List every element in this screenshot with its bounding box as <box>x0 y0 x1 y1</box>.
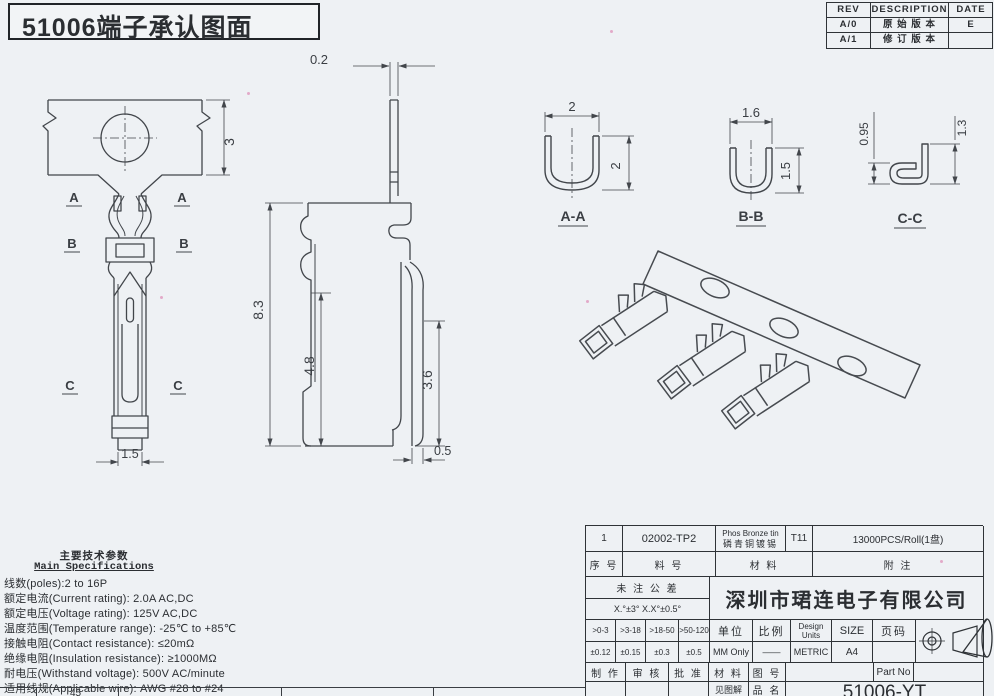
approve-value <box>669 682 709 696</box>
rev-row-desc: 原 始 版 本 <box>871 18 949 33</box>
side-view-drawing: 0.2 8.3 4.8 3.6 0.5 <box>253 48 458 473</box>
bottom-table-fragment <box>0 687 586 696</box>
tol-range: >3-18 <box>616 620 646 642</box>
dim-aa-width: 2 <box>568 99 575 114</box>
terminal-3d-2 <box>645 314 755 401</box>
untoleranced-label: 未 注 公 差 <box>586 577 710 599</box>
front-view-outline <box>43 100 210 450</box>
spec-line: 耐电压(Withstand voltage): 500V AC/minute <box>4 665 225 679</box>
terminal-3d-3 <box>709 344 819 431</box>
design-units-label: Design Units <box>791 620 832 642</box>
spec-line: 绝缘电阻(Insulation resistance): ≥1000MΩ <box>4 650 217 664</box>
dim-cc-left: 0.95 <box>857 122 871 146</box>
title-block: 1 02002-TP2 Phos Bronze tin 磷青铜镀锡 T11 13… <box>585 525 983 696</box>
part-material: Phos Bronze tin 磷青铜镀锡 <box>716 526 786 552</box>
part-index: 1 <box>586 526 623 552</box>
drawing-no-label: 图 号 <box>749 663 786 682</box>
dim-cc-right: 1.3 <box>955 119 969 136</box>
header-material: 材 料 <box>716 552 813 577</box>
spec-line: 接触电阻(Contact resistance): ≤20mΩ <box>4 635 194 649</box>
table-divider <box>433 688 434 696</box>
dim-foot-width: 0.5 <box>434 444 451 458</box>
check-value <box>626 682 669 696</box>
header-part-number: 料 号 <box>623 552 716 577</box>
rev-row-date <box>949 33 993 49</box>
dim-spring-height: 3.6 <box>419 370 435 390</box>
table-fragment-value: 45 <box>70 688 81 696</box>
material-en: Phos Bronze tin <box>722 528 778 539</box>
revision-table: REV DESCRIPTION DATE A/0 原 始 版 本 E A/1 修… <box>826 2 993 49</box>
dim-aa-height: 2 <box>608 162 623 169</box>
page-value <box>873 642 916 663</box>
tol-value: ±0.3 <box>646 642 679 663</box>
spec-line: 额定电压(Voltage rating): 125V AC,DC <box>4 605 197 619</box>
scale-label: 比例 <box>753 620 791 642</box>
size-label: SIZE <box>832 620 873 642</box>
section-cc-label: C-C <box>898 210 923 226</box>
header-note: 附 注 <box>813 552 984 577</box>
part-no-label: Part No <box>874 663 914 682</box>
rev-header-rev: REV <box>827 3 871 18</box>
section-aa-label: A-A <box>561 208 586 224</box>
table-divider <box>281 688 282 696</box>
check-label: 审 核 <box>626 663 669 682</box>
scan-speck <box>160 296 163 299</box>
unit-value: MM Only <box>710 642 753 663</box>
isometric-strip-drawing <box>552 248 994 488</box>
design-units-value: METRIC <box>791 642 832 663</box>
scan-speck <box>940 560 943 563</box>
scan-speck <box>610 30 613 33</box>
part-number: 02002-TP2 <box>623 526 716 552</box>
material-grade: T11 <box>786 526 813 552</box>
product-label: 品 名 <box>749 682 786 696</box>
company-name: 深圳市珺连电子有限公司 <box>710 577 984 620</box>
tol-value: ±0.5 <box>679 642 710 663</box>
section-label-c-right: C <box>173 378 183 393</box>
side-view-outline <box>301 100 424 446</box>
part-no-value: 51006-YT <box>786 682 984 696</box>
section-label-a-left: A <box>69 190 79 205</box>
scan-speck <box>586 300 589 303</box>
part-no-spacer <box>914 663 984 682</box>
see-note-label: 见图解 <box>709 682 749 696</box>
spec-line: 额定电流(Current rating): 2.0A AC,DC <box>4 590 194 604</box>
rev-header-desc: DESCRIPTION <box>871 3 949 18</box>
dim-tip-width: 1.5 <box>121 447 138 461</box>
make-label: 制 作 <box>586 663 626 682</box>
rev-row-rev: A/1 <box>827 33 871 49</box>
dim-strip-height: 3 <box>221 138 237 146</box>
make-value <box>586 682 626 696</box>
tol-value: ±0.15 <box>616 642 646 663</box>
drawing-sheet: 51006端子承认图面 REV DESCRIPTION DATE A/0 原 始… <box>0 0 994 696</box>
scan-speck <box>247 92 250 95</box>
material-cn: 磷青铜镀锡 <box>723 539 778 550</box>
page-title: 51006端子承认图面 <box>8 3 320 40</box>
header-index: 序 号 <box>586 552 623 577</box>
spec-line: 温度范围(Temperature range): -25℃ to +85℃ <box>4 620 236 634</box>
approve-label: 批 准 <box>669 663 709 682</box>
specs-title-en: Main Specifications <box>26 561 162 573</box>
projection-cone-icon <box>960 616 994 662</box>
rev-row-date: E <box>949 18 993 33</box>
table-divider <box>118 688 119 696</box>
section-bb-label: B-B <box>739 208 764 224</box>
tol-range: >50-120 <box>679 620 710 642</box>
tol-range: >18-50 <box>646 620 679 642</box>
spec-line: 线数(poles):2 to 16P <box>4 575 107 589</box>
dim-bb-width: 1.6 <box>742 105 760 120</box>
section-label-c-left: C <box>65 378 75 393</box>
rev-header-date: DATE <box>949 3 993 18</box>
dim-bb-height: 1.5 <box>778 162 793 180</box>
packing-note: 13000PCS/Roll(1盘) <box>813 526 984 552</box>
dim-thickness: 0.2 <box>310 52 328 67</box>
rev-row-desc: 修 订 版 本 <box>871 33 949 49</box>
page-label: 页码 <box>873 620 916 642</box>
section-label-b-left: B <box>67 236 76 251</box>
material-label: 材 料 <box>709 663 749 682</box>
drawing-no-value <box>786 663 874 682</box>
section-label-a-right: A <box>177 190 187 205</box>
section-views-drawing: 2 2 A-A 1.6 1.5 B-B 0.95 1.3 C-C <box>528 82 994 247</box>
unit-label: 单位 <box>710 620 753 642</box>
tol-value: ±0.12 <box>586 642 616 663</box>
angle-tolerance: X.°±3° X.X°±0.5° <box>586 599 710 620</box>
scale-value: —— <box>753 642 791 663</box>
side-view-dimensions <box>265 62 445 464</box>
front-view-drawing: 3 1.5 A A B B C C <box>18 72 243 472</box>
dim-total-height: 8.3 <box>253 300 266 320</box>
dim-mid-height: 4.8 <box>301 356 317 376</box>
tol-range: >0-3 <box>586 620 616 642</box>
rev-row-rev: A/0 <box>827 18 871 33</box>
table-divider <box>36 688 37 696</box>
section-label-b-right: B <box>179 236 188 251</box>
size-value: A4 <box>832 642 873 663</box>
terminal-3d-1 <box>567 274 677 361</box>
